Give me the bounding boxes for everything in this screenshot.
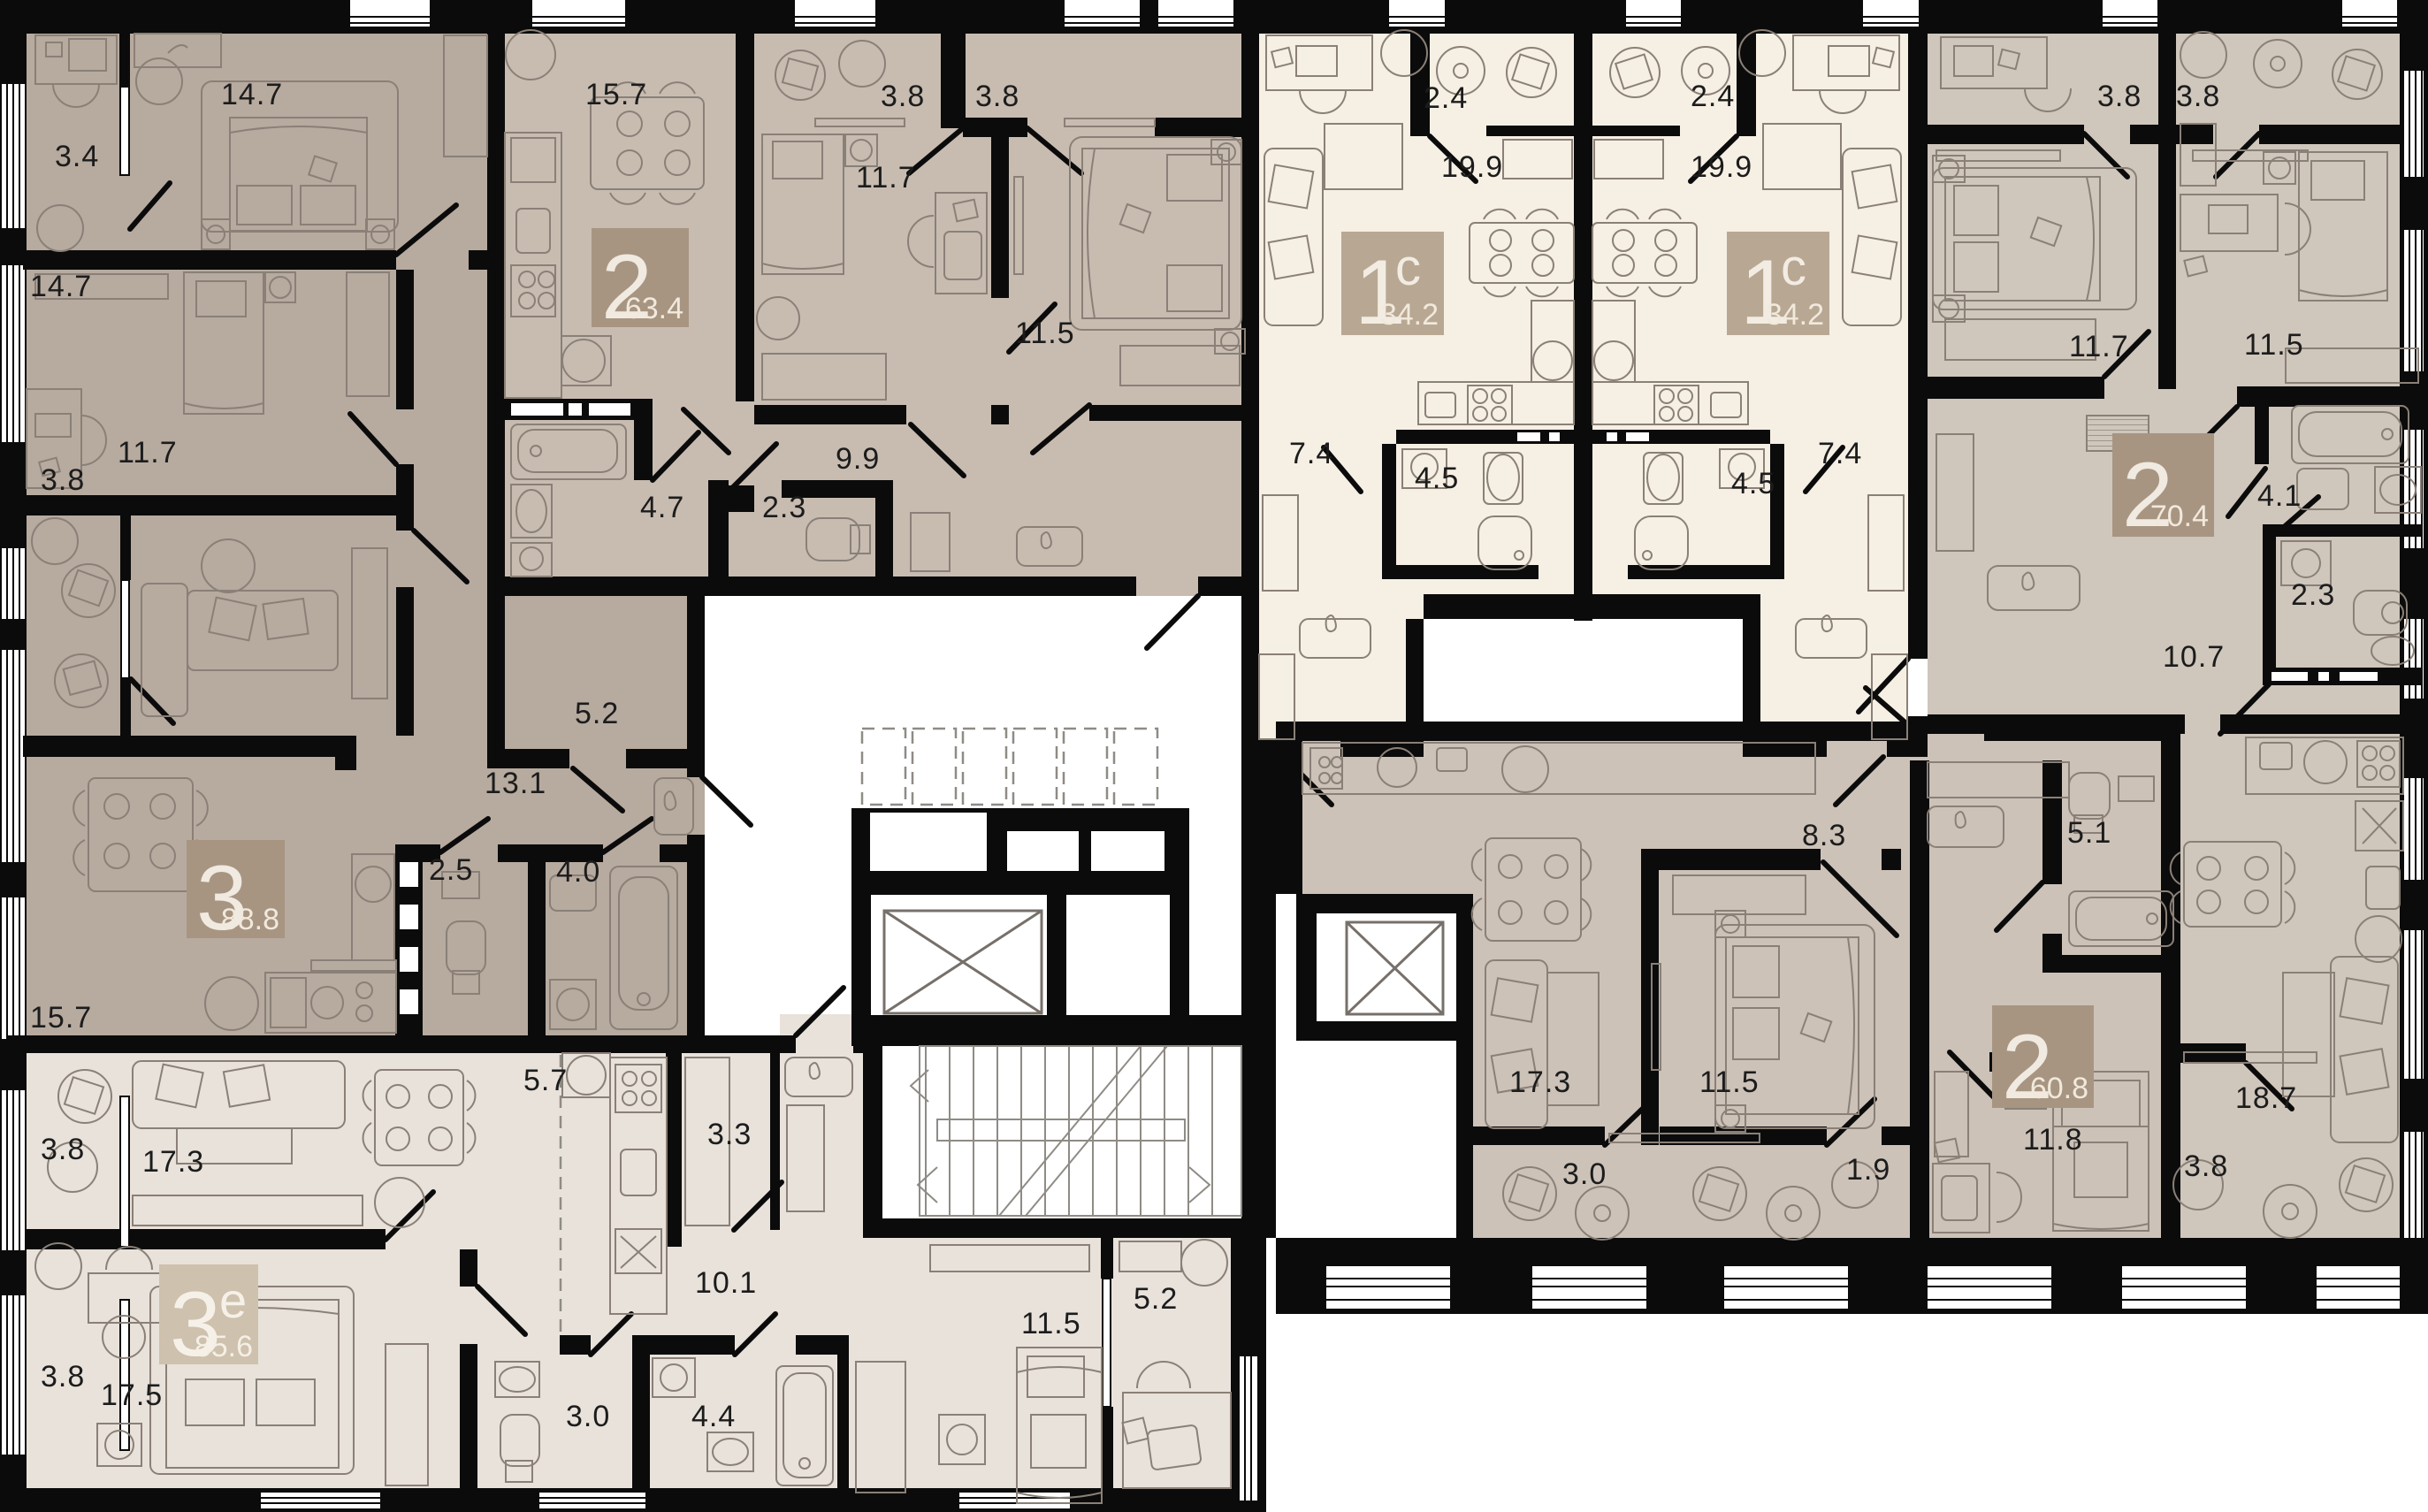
svg-text:8.3: 8.3 bbox=[1802, 819, 1846, 852]
svg-text:11.5: 11.5 bbox=[1015, 317, 1075, 350]
svg-text:3.8: 3.8 bbox=[41, 1133, 85, 1166]
svg-text:11.7: 11.7 bbox=[2069, 330, 2129, 363]
svg-text:17.3: 17.3 bbox=[1509, 1065, 1571, 1099]
svg-text:4.7: 4.7 bbox=[640, 491, 684, 524]
svg-text:9.9: 9.9 bbox=[836, 442, 880, 476]
svg-text:19.9: 19.9 bbox=[1441, 150, 1503, 184]
svg-text:10.7: 10.7 bbox=[2163, 640, 2225, 674]
svg-text:17.5: 17.5 bbox=[101, 1378, 163, 1412]
svg-text:3.8: 3.8 bbox=[41, 463, 85, 497]
svg-text:3.8: 3.8 bbox=[2176, 80, 2220, 113]
svg-text:11.7: 11.7 bbox=[118, 436, 178, 470]
svg-text:5.1: 5.1 bbox=[2067, 816, 2111, 850]
svg-text:70.4: 70.4 bbox=[2150, 500, 2209, 533]
svg-text:4.1: 4.1 bbox=[2257, 479, 2302, 513]
svg-text:13.1: 13.1 bbox=[485, 767, 546, 800]
svg-text:2.4: 2.4 bbox=[1691, 80, 1735, 113]
svg-text:c: c bbox=[1395, 239, 1421, 296]
svg-text:3.8: 3.8 bbox=[881, 80, 925, 113]
svg-text:14.7: 14.7 bbox=[30, 270, 92, 303]
svg-text:34.2: 34.2 bbox=[1380, 298, 1439, 332]
svg-text:10.1: 10.1 bbox=[695, 1266, 757, 1300]
svg-text:60.8: 60.8 bbox=[2030, 1072, 2088, 1105]
svg-text:19.9: 19.9 bbox=[1691, 150, 1752, 184]
svg-text:5.2: 5.2 bbox=[1134, 1282, 1178, 1316]
svg-text:4.5: 4.5 bbox=[1415, 462, 1459, 495]
svg-text:85.6: 85.6 bbox=[195, 1330, 253, 1363]
svg-text:3.8: 3.8 bbox=[2097, 80, 2142, 113]
svg-text:3.0: 3.0 bbox=[566, 1400, 610, 1433]
svg-text:11.8: 11.8 bbox=[2023, 1123, 2083, 1157]
svg-text:3.8: 3.8 bbox=[975, 80, 1019, 113]
svg-text:7.4: 7.4 bbox=[1818, 437, 1862, 470]
svg-text:3.3: 3.3 bbox=[707, 1118, 752, 1151]
svg-text:14.7: 14.7 bbox=[221, 78, 283, 111]
svg-text:c: c bbox=[1781, 239, 1806, 296]
svg-text:4.0: 4.0 bbox=[556, 855, 600, 889]
svg-text:7.4: 7.4 bbox=[1289, 437, 1333, 470]
svg-text:5.7: 5.7 bbox=[523, 1064, 568, 1097]
svg-text:2.3: 2.3 bbox=[2291, 578, 2335, 612]
svg-text:5.2: 5.2 bbox=[575, 697, 619, 730]
svg-text:11.5: 11.5 bbox=[2244, 328, 2304, 362]
svg-text:3.0: 3.0 bbox=[1562, 1157, 1607, 1191]
svg-text:3.8: 3.8 bbox=[2184, 1149, 2228, 1183]
svg-text:11.7: 11.7 bbox=[856, 161, 916, 195]
svg-text:88.8: 88.8 bbox=[221, 903, 279, 936]
svg-text:3.4: 3.4 bbox=[55, 140, 99, 173]
svg-text:17.3: 17.3 bbox=[142, 1145, 204, 1179]
svg-text:3.8: 3.8 bbox=[41, 1360, 85, 1394]
svg-text:63.4: 63.4 bbox=[625, 292, 683, 325]
svg-text:18.7: 18.7 bbox=[2235, 1081, 2297, 1115]
svg-text:15.7: 15.7 bbox=[30, 1001, 92, 1035]
svg-text:2.5: 2.5 bbox=[429, 853, 473, 887]
svg-text:34.2: 34.2 bbox=[1766, 298, 1824, 332]
svg-text:4.4: 4.4 bbox=[691, 1400, 736, 1433]
svg-text:11.5: 11.5 bbox=[1699, 1065, 1760, 1099]
svg-text:15.7: 15.7 bbox=[585, 78, 647, 111]
svg-text:2.4: 2.4 bbox=[1424, 81, 1468, 115]
svg-text:11.5: 11.5 bbox=[1021, 1307, 1081, 1340]
svg-text:2.3: 2.3 bbox=[762, 491, 806, 524]
svg-text:е: е bbox=[219, 1272, 247, 1328]
svg-text:4.5: 4.5 bbox=[1731, 467, 1775, 500]
svg-text:1.9: 1.9 bbox=[1846, 1153, 1890, 1187]
